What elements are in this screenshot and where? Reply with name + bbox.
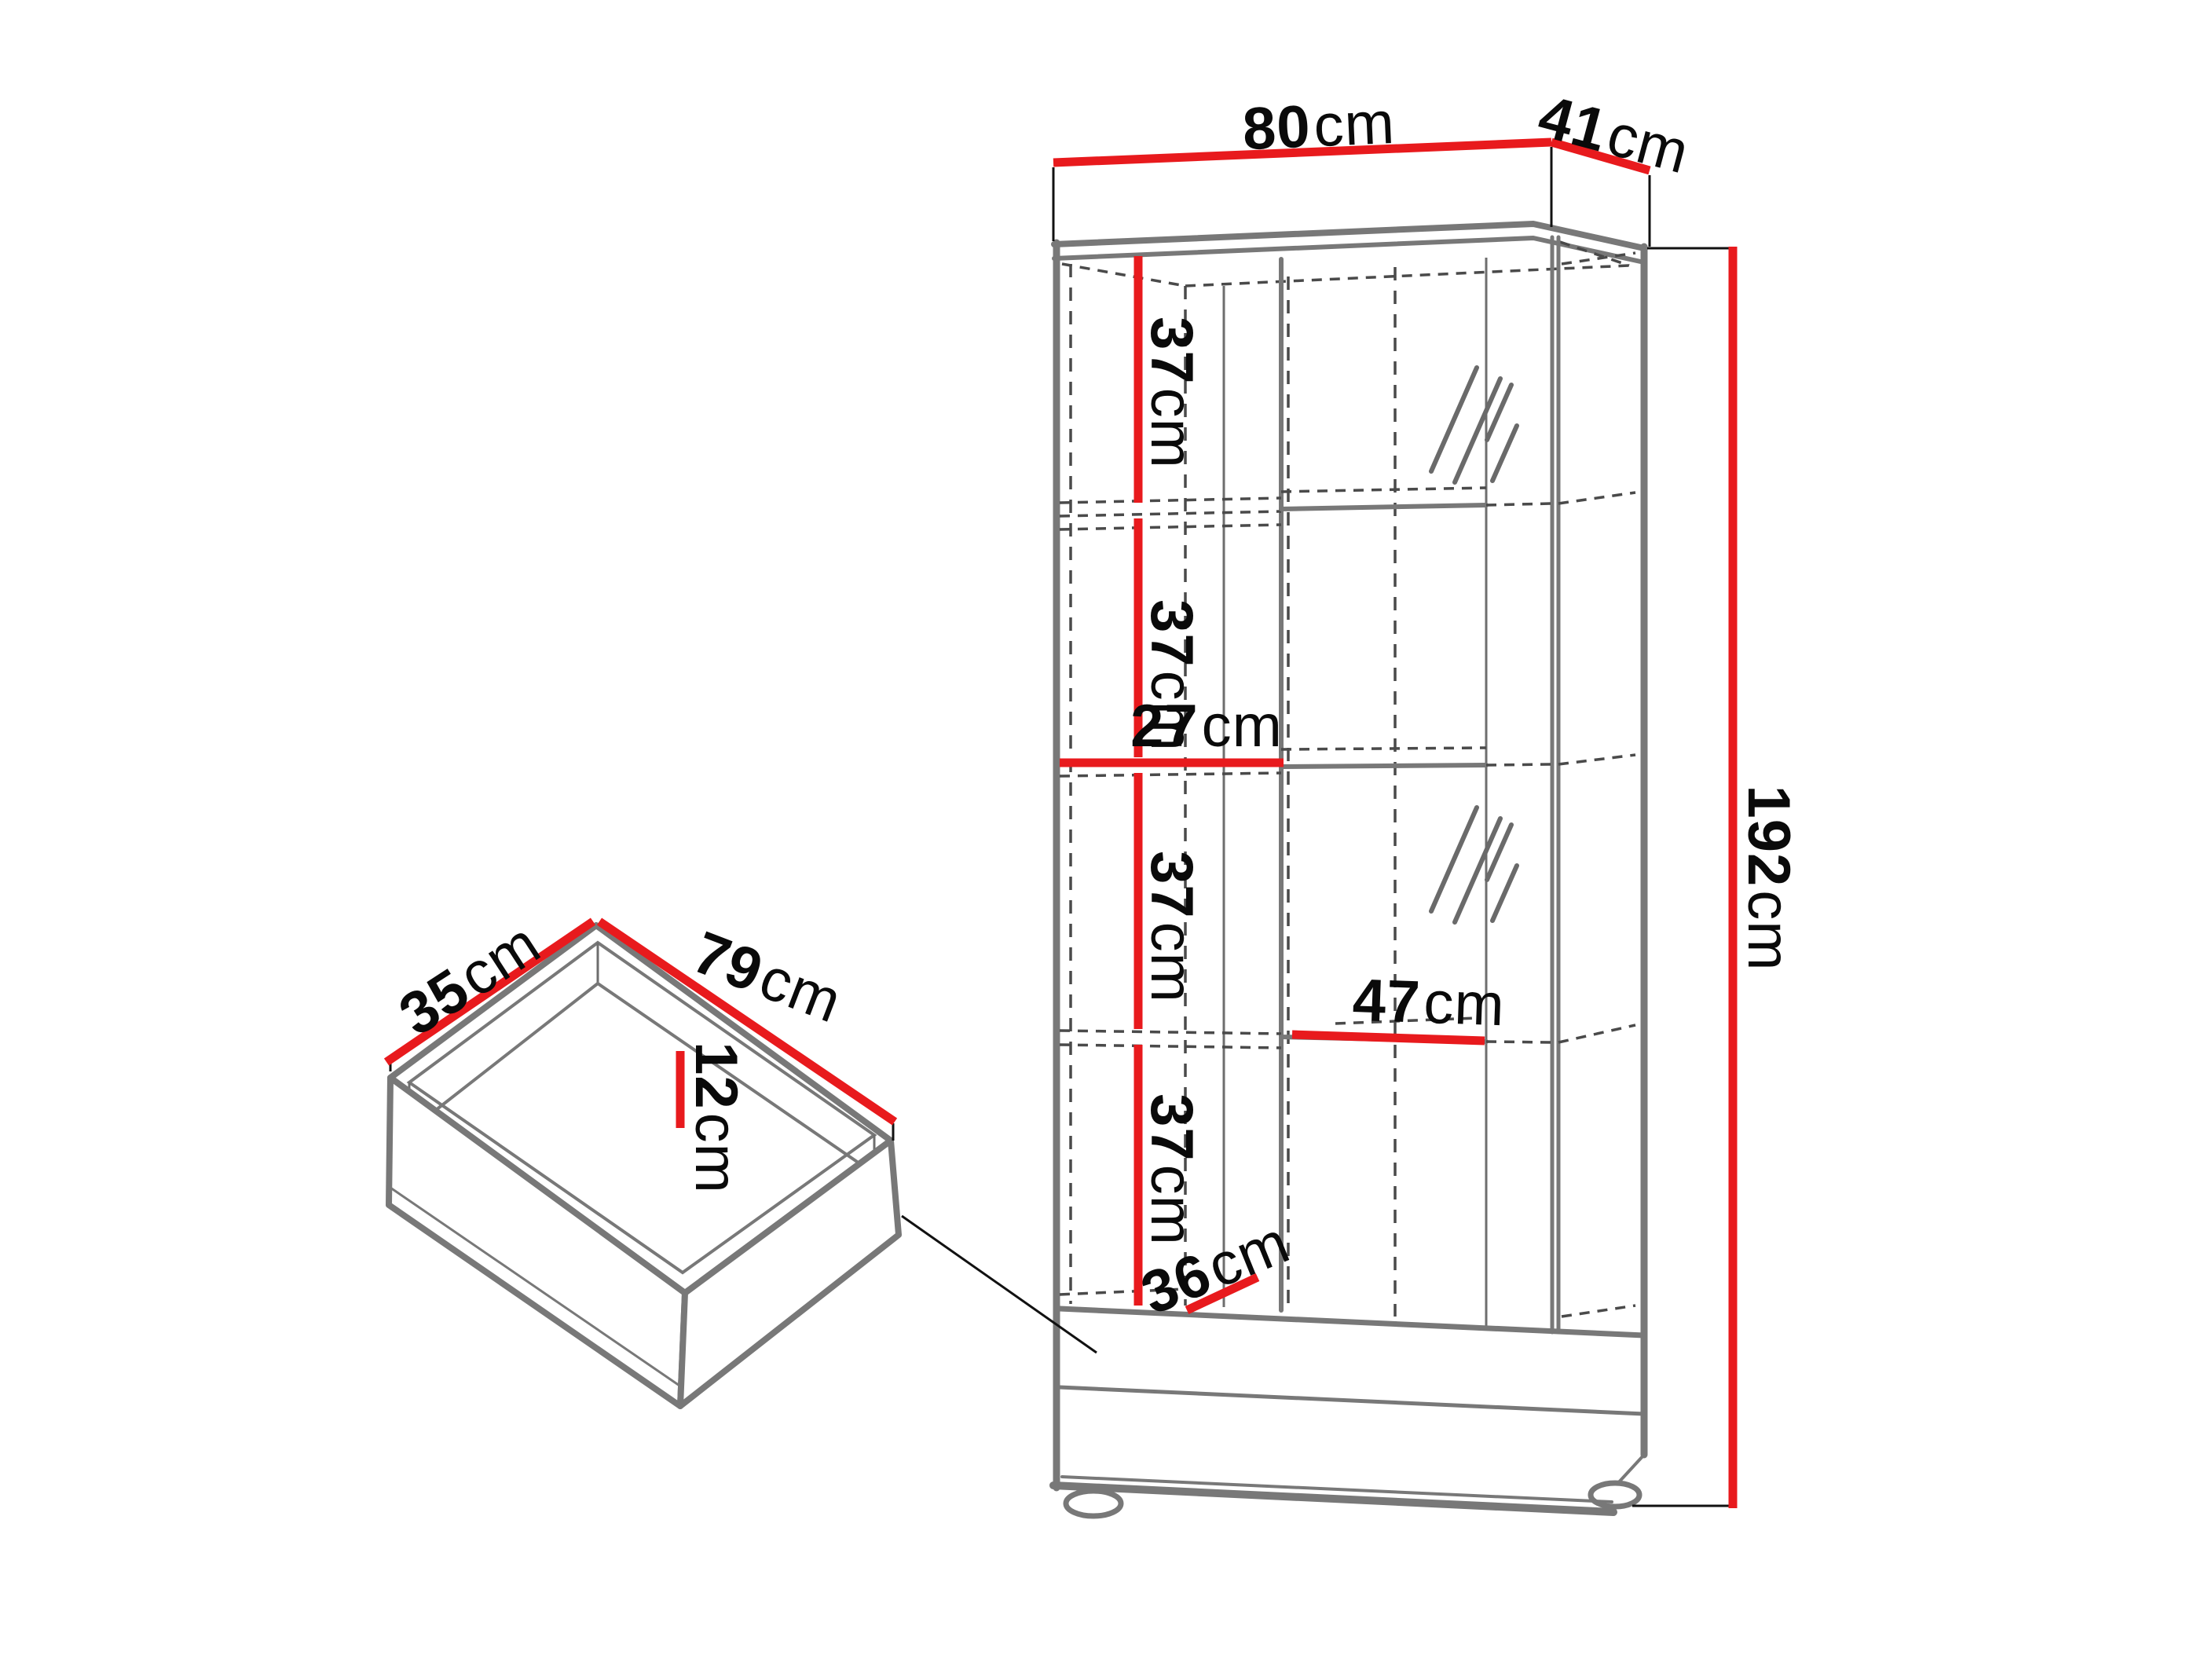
shelf3-side-diagonal [1558, 1025, 1635, 1042]
left-compartment-width-label: 27cm [1130, 693, 1283, 760]
cabinet-left-foot [1066, 1491, 1121, 1516]
shelf2-back-dash [1281, 748, 1486, 749]
shelf3-hidden-top [1060, 1031, 1281, 1034]
drawer-detail: 35cm 79cm 12cm [386, 910, 1097, 1406]
shelf2-hidden-bottom [1060, 773, 1281, 776]
right-compartment-width-label: 47cm [1352, 967, 1507, 1039]
shelf1-back-dash [1281, 488, 1486, 492]
interior-top-back-diagonal-left [1062, 264, 1185, 286]
diagram-canvas: 80cm 41cm 192cm 37cm 37cm 37cm 37cm 27cm… [0, 0, 2212, 1659]
cabinet-right-bottom-chamfer [1617, 1455, 1644, 1485]
shelf2-side-dash [1486, 764, 1552, 765]
side-panel-bottom-dash [1562, 1306, 1635, 1317]
shelf2-side-diagonal [1558, 755, 1635, 764]
shelf-spacing-label-3: 37cm [1138, 851, 1205, 1003]
shelf2-front-edge [1281, 765, 1486, 767]
width-label: 80cm [1241, 90, 1396, 163]
cabinet-dimension-labels: 80cm 41cm 192cm 37cm 37cm 37cm 37cm 27cm… [1130, 82, 1802, 1328]
shelf1-side-dash [1486, 504, 1552, 505]
shelf1-front-edge [1281, 505, 1486, 509]
shelf-spacing-label-1: 37cm [1138, 317, 1205, 469]
drawer-separation-line [1060, 1387, 1644, 1414]
height-label: 192cm [1735, 785, 1802, 971]
interior-bottom-edge [1060, 1309, 1644, 1335]
cabinet-right-foot [1591, 1483, 1639, 1507]
glass-reflection-lower-icon [1431, 808, 1517, 922]
shelf1-side-diagonal [1558, 493, 1635, 504]
shelf3-side-dash [1486, 1042, 1552, 1042]
glass-reflection-upper-icon [1431, 368, 1517, 482]
shelf-spacing-label-4: 37cm [1138, 1093, 1205, 1246]
depth-label: 41cm [1532, 82, 1696, 186]
drawer-pointer-line [902, 1216, 1097, 1353]
shelf3-hidden-bottom [1060, 1045, 1281, 1048]
shelf1-hidden-bottom [1060, 525, 1281, 529]
shelf1-hidden-mid [1060, 511, 1281, 516]
drawer-height-label: 12cm [683, 1042, 749, 1194]
interior-top-back-edge [1185, 266, 1629, 286]
shelf1-hidden-top [1060, 498, 1281, 503]
furniture-dimension-diagram: 80cm 41cm 192cm 37cm 37cm 37cm 37cm 27cm… [0, 0, 2212, 1659]
